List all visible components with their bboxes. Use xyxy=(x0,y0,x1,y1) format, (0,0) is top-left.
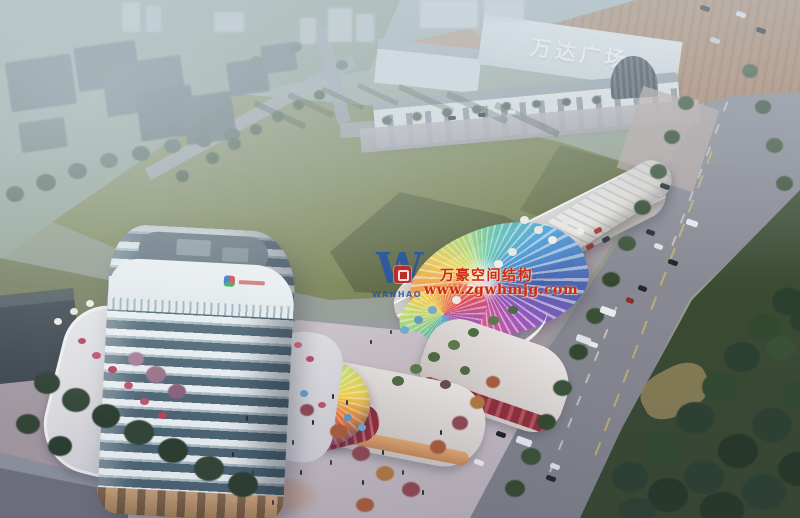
cars-item xyxy=(508,110,516,115)
cars-item xyxy=(637,285,647,293)
cars-item xyxy=(653,243,663,251)
watermark-logo-badge-mark xyxy=(398,270,409,281)
cars-item xyxy=(545,474,556,482)
cars-item xyxy=(478,113,486,118)
cars-item xyxy=(473,458,484,466)
cars-item xyxy=(495,430,506,438)
cars-item xyxy=(645,229,655,237)
cars-item xyxy=(585,242,594,250)
cars-item xyxy=(448,116,456,121)
rendering-canvas: 万达广场 W xyxy=(0,0,800,518)
cars-item xyxy=(735,10,746,18)
cars-item xyxy=(515,435,532,447)
cars-item xyxy=(549,462,560,470)
cars-item xyxy=(709,36,720,44)
watermark-logo-name: WANHAO xyxy=(372,290,422,299)
cars-item xyxy=(685,218,698,228)
cars-item xyxy=(699,4,710,12)
watermark-line2: www.zgwhmjg.com xyxy=(424,282,578,298)
watermark-logo-badge xyxy=(394,266,411,283)
cars-item xyxy=(593,226,602,234)
cars-item xyxy=(667,258,678,266)
cars-item xyxy=(599,305,616,317)
cars-item xyxy=(625,297,634,304)
cars-item xyxy=(659,182,670,190)
cars-item xyxy=(575,334,591,346)
cars-item xyxy=(601,235,610,243)
cars-item xyxy=(755,26,766,34)
